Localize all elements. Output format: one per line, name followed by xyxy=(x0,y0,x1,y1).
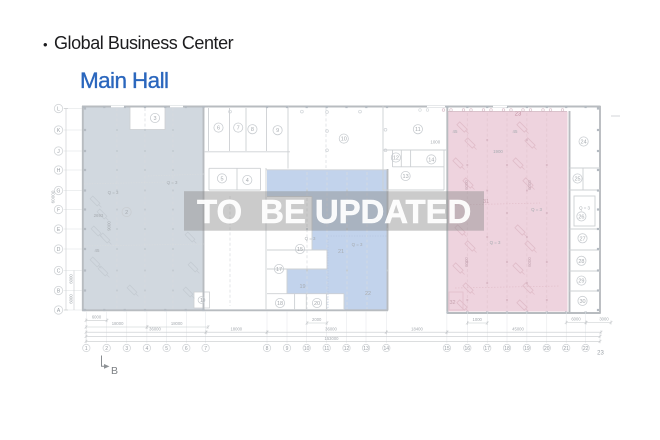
svg-text:20: 20 xyxy=(314,301,320,307)
svg-text:7: 7 xyxy=(204,346,207,352)
svg-text:18400: 18400 xyxy=(411,326,423,331)
svg-text:6000: 6000 xyxy=(527,180,532,190)
svg-text:2000: 2000 xyxy=(312,317,322,322)
svg-text:3: 3 xyxy=(153,116,156,122)
svg-text:1900: 1900 xyxy=(493,149,503,154)
svg-text:24: 24 xyxy=(581,140,587,146)
svg-text:B: B xyxy=(111,365,118,377)
svg-text:Q = 3: Q = 3 xyxy=(490,240,501,245)
svg-text:25: 25 xyxy=(574,177,580,183)
svg-text:60000: 60000 xyxy=(51,190,56,203)
svg-text:15: 15 xyxy=(297,247,303,253)
svg-text:18: 18 xyxy=(277,301,283,307)
svg-text:Q = 3: Q = 3 xyxy=(352,242,363,247)
svg-text:1000: 1000 xyxy=(430,140,440,145)
svg-text:Q = 3: Q = 3 xyxy=(305,236,316,241)
svg-text:L: L xyxy=(57,107,60,113)
svg-text:30: 30 xyxy=(579,299,585,305)
svg-text:15: 15 xyxy=(444,346,450,352)
svg-text:6000: 6000 xyxy=(527,257,532,267)
svg-text:14: 14 xyxy=(428,157,434,163)
svg-text:9: 9 xyxy=(276,128,279,134)
svg-text:45: 45 xyxy=(513,129,518,134)
svg-text:9: 9 xyxy=(286,346,289,352)
svg-text:3: 3 xyxy=(125,346,128,352)
svg-text:4: 4 xyxy=(246,178,249,184)
svg-text:36000: 36000 xyxy=(325,326,337,331)
svg-text:2: 2 xyxy=(105,346,108,352)
svg-text:18000: 18000 xyxy=(112,321,124,326)
svg-text:D: D xyxy=(57,247,61,253)
svg-text:32: 32 xyxy=(449,300,455,306)
svg-text:Q = 3: Q = 3 xyxy=(531,207,542,212)
svg-text:20: 20 xyxy=(544,346,550,352)
svg-text:5: 5 xyxy=(165,346,168,352)
svg-text:22: 22 xyxy=(583,346,589,352)
svg-text:17: 17 xyxy=(484,346,490,352)
svg-text:3000: 3000 xyxy=(599,317,609,322)
svg-text:6000: 6000 xyxy=(69,294,74,304)
svg-text:4: 4 xyxy=(146,346,149,352)
svg-text:18: 18 xyxy=(504,346,510,352)
svg-text:16: 16 xyxy=(465,346,471,352)
svg-text:45: 45 xyxy=(453,129,458,134)
svg-text:12: 12 xyxy=(344,346,350,352)
svg-text:14: 14 xyxy=(384,346,390,352)
svg-text:1: 1 xyxy=(200,298,203,304)
svg-text:6000: 6000 xyxy=(571,317,581,322)
svg-text:21: 21 xyxy=(338,249,344,255)
svg-text:1000: 1000 xyxy=(473,317,483,322)
svg-text:6000: 6000 xyxy=(464,180,469,190)
svg-text:Q = 3: Q = 3 xyxy=(579,206,590,211)
svg-text:F: F xyxy=(57,208,60,214)
svg-text:21: 21 xyxy=(563,346,569,352)
svg-text:13: 13 xyxy=(363,346,369,352)
svg-text:153000: 153000 xyxy=(325,336,340,341)
svg-text:11: 11 xyxy=(324,346,329,352)
svg-text:6000: 6000 xyxy=(92,314,102,319)
svg-text:26: 26 xyxy=(578,214,584,220)
svg-text:9000: 9000 xyxy=(107,221,112,231)
svg-text:28: 28 xyxy=(578,259,584,265)
svg-text:45000: 45000 xyxy=(512,326,524,331)
svg-text:12: 12 xyxy=(393,156,399,162)
svg-text:29: 29 xyxy=(578,279,584,285)
svg-text:36000: 36000 xyxy=(149,326,161,331)
svg-text:Q = 3: Q = 3 xyxy=(108,190,119,195)
svg-text:C: C xyxy=(57,269,61,275)
svg-text:18000: 18000 xyxy=(171,321,183,326)
svg-text:17: 17 xyxy=(276,267,282,273)
svg-text:19: 19 xyxy=(299,284,305,290)
svg-text:23: 23 xyxy=(515,112,522,118)
svg-text:TO BE UPDATED: TO BE UPDATED xyxy=(197,193,471,230)
svg-text:6: 6 xyxy=(217,126,220,132)
svg-text:8: 8 xyxy=(266,346,269,352)
svg-text:11: 11 xyxy=(415,127,421,133)
svg-text:22: 22 xyxy=(365,291,371,297)
svg-text:10: 10 xyxy=(304,346,310,352)
svg-text:2: 2 xyxy=(125,210,128,216)
svg-text:6: 6 xyxy=(185,346,188,352)
svg-text:7: 7 xyxy=(237,126,240,132)
svg-text:6000: 6000 xyxy=(69,274,74,284)
svg-text:Q = 3: Q = 3 xyxy=(167,180,178,185)
svg-text:27: 27 xyxy=(579,236,585,242)
svg-text:45: 45 xyxy=(95,248,100,253)
svg-text:G: G xyxy=(57,189,61,195)
svg-text:19: 19 xyxy=(524,346,530,352)
svg-text:5: 5 xyxy=(220,176,223,182)
svg-text:6000: 6000 xyxy=(464,257,469,267)
svg-text:13: 13 xyxy=(403,174,409,180)
svg-text:23: 23 xyxy=(597,351,604,357)
svg-text:2693: 2693 xyxy=(94,213,104,218)
svg-text:18000: 18000 xyxy=(230,326,242,331)
svg-text:10: 10 xyxy=(341,137,347,143)
svg-text:1: 1 xyxy=(85,346,88,352)
svg-text:8: 8 xyxy=(251,127,254,133)
svg-text:H: H xyxy=(57,168,61,174)
